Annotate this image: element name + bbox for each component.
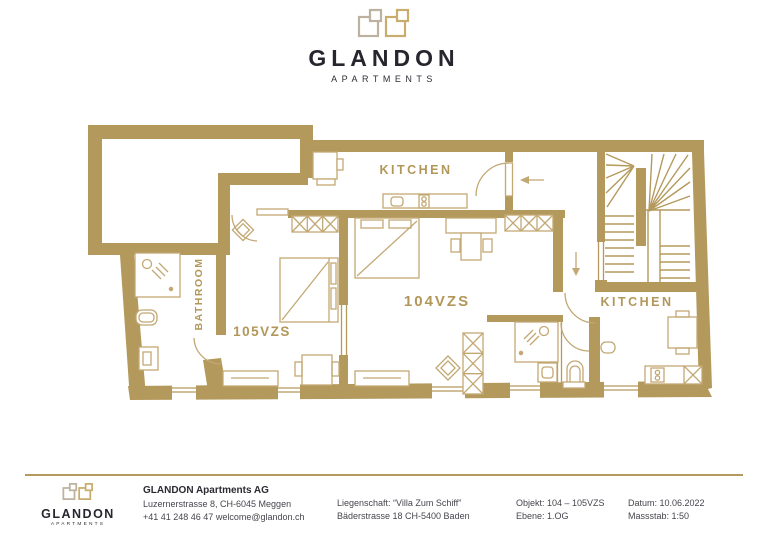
toilet-wc-icon: [563, 361, 585, 388]
bed-104: [355, 218, 419, 278]
decor-diamond: [232, 219, 253, 240]
property-line1: Liegenschaft: “Villa Zum Schiff”: [337, 497, 470, 510]
stairs-down-arrow-icon: [572, 252, 580, 276]
company-name: GLANDON Apartments AG: [143, 484, 305, 497]
bed-105: [280, 258, 338, 322]
kitchen-top-counter: [383, 194, 467, 208]
wardrobe-row-105: [292, 216, 338, 232]
room-label-105vzs: 105VZS: [233, 324, 291, 339]
room-label-kitchen-right: KITCHEN: [600, 295, 673, 309]
footer-property: Liegenschaft: “Villa Zum Schiff” Bäderst…: [337, 497, 470, 523]
company-address: Luzernerstrasse 8, CH-6045 Meggen: [143, 498, 305, 511]
footer-object: Objekt: 104 – 105VZS Ebene: 1.OG: [516, 497, 605, 523]
toilet-bathroom-icon: [139, 347, 158, 370]
door-arc-wc: [561, 323, 589, 351]
shower-104: [515, 322, 558, 362]
bathtub-sink-icon: [136, 310, 157, 325]
room-label-kitchen-top: KITCHEN: [379, 163, 452, 177]
staircase: [605, 154, 690, 282]
entry-door: [476, 163, 513, 196]
footer-company: GLANDON Apartments AG Luzernerstrasse 8,…: [143, 484, 305, 524]
counter-kitchen-right: [645, 366, 702, 384]
footer-logo: GLANDON APARTMENTS: [38, 482, 118, 527]
floorplan-page: { "brand": { "name": "GLANDON", "subtitl…: [0, 0, 768, 541]
bench-105: [223, 371, 278, 386]
table-105: [295, 355, 339, 385]
wardrobe-column-104: [463, 333, 483, 394]
footer-brand-name: GLANDON: [38, 507, 118, 521]
glandon-logo-icon: [61, 482, 95, 501]
entry-arrow-icon: [520, 176, 544, 184]
object-line2: Ebene: 1.OG: [516, 510, 605, 523]
meta-line2: Massstab: 1:50: [628, 510, 705, 523]
table-kitchen-right: [668, 311, 697, 354]
footer: GLANDON APARTMENTS GLANDON Apartments AG…: [0, 474, 768, 541]
decor-diamond: [436, 356, 460, 380]
object-line1: Objekt: 104 – 105VZS: [516, 497, 605, 510]
footer-meta: Datum: 10.06.2022 Massstab: 1:50: [628, 497, 705, 523]
meta-line1: Datum: 10.06.2022: [628, 497, 705, 510]
shower-bathroom: [135, 253, 180, 297]
room-label-bathroom: BATHROOM: [193, 257, 205, 330]
bench-104: [355, 371, 409, 386]
kitchen-top-appliance: [313, 152, 343, 185]
property-line2: Bäderstrasse 18 CH-5400 Baden: [337, 510, 470, 523]
floor-plan: KITCHEN KITCHEN 104VZS 105VZS BATHROOM: [0, 0, 768, 475]
sink-kitchen-right: [601, 342, 615, 353]
footer-brand-subtitle: APARTMENTS: [38, 522, 118, 527]
footer-divider: [25, 474, 743, 476]
wardrobe-row-104: [505, 215, 553, 231]
desk-104: [446, 218, 496, 260]
company-contact: +41 41 248 46 47 welcome@glandon.ch: [143, 511, 305, 524]
room-label-104vzs: 104VZS: [404, 293, 470, 310]
basin-104: [538, 363, 557, 382]
